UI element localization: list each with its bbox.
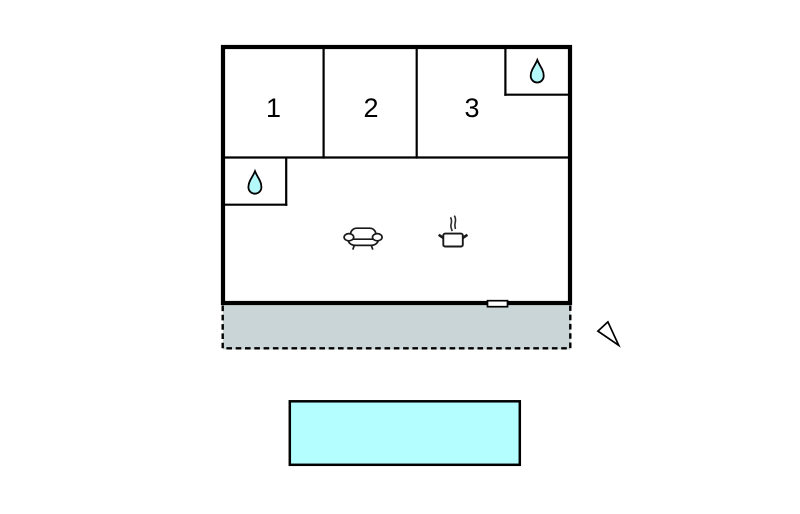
- svg-text:1: 1: [266, 93, 281, 123]
- svg-text:3: 3: [464, 93, 479, 123]
- svg-text:2: 2: [363, 93, 378, 123]
